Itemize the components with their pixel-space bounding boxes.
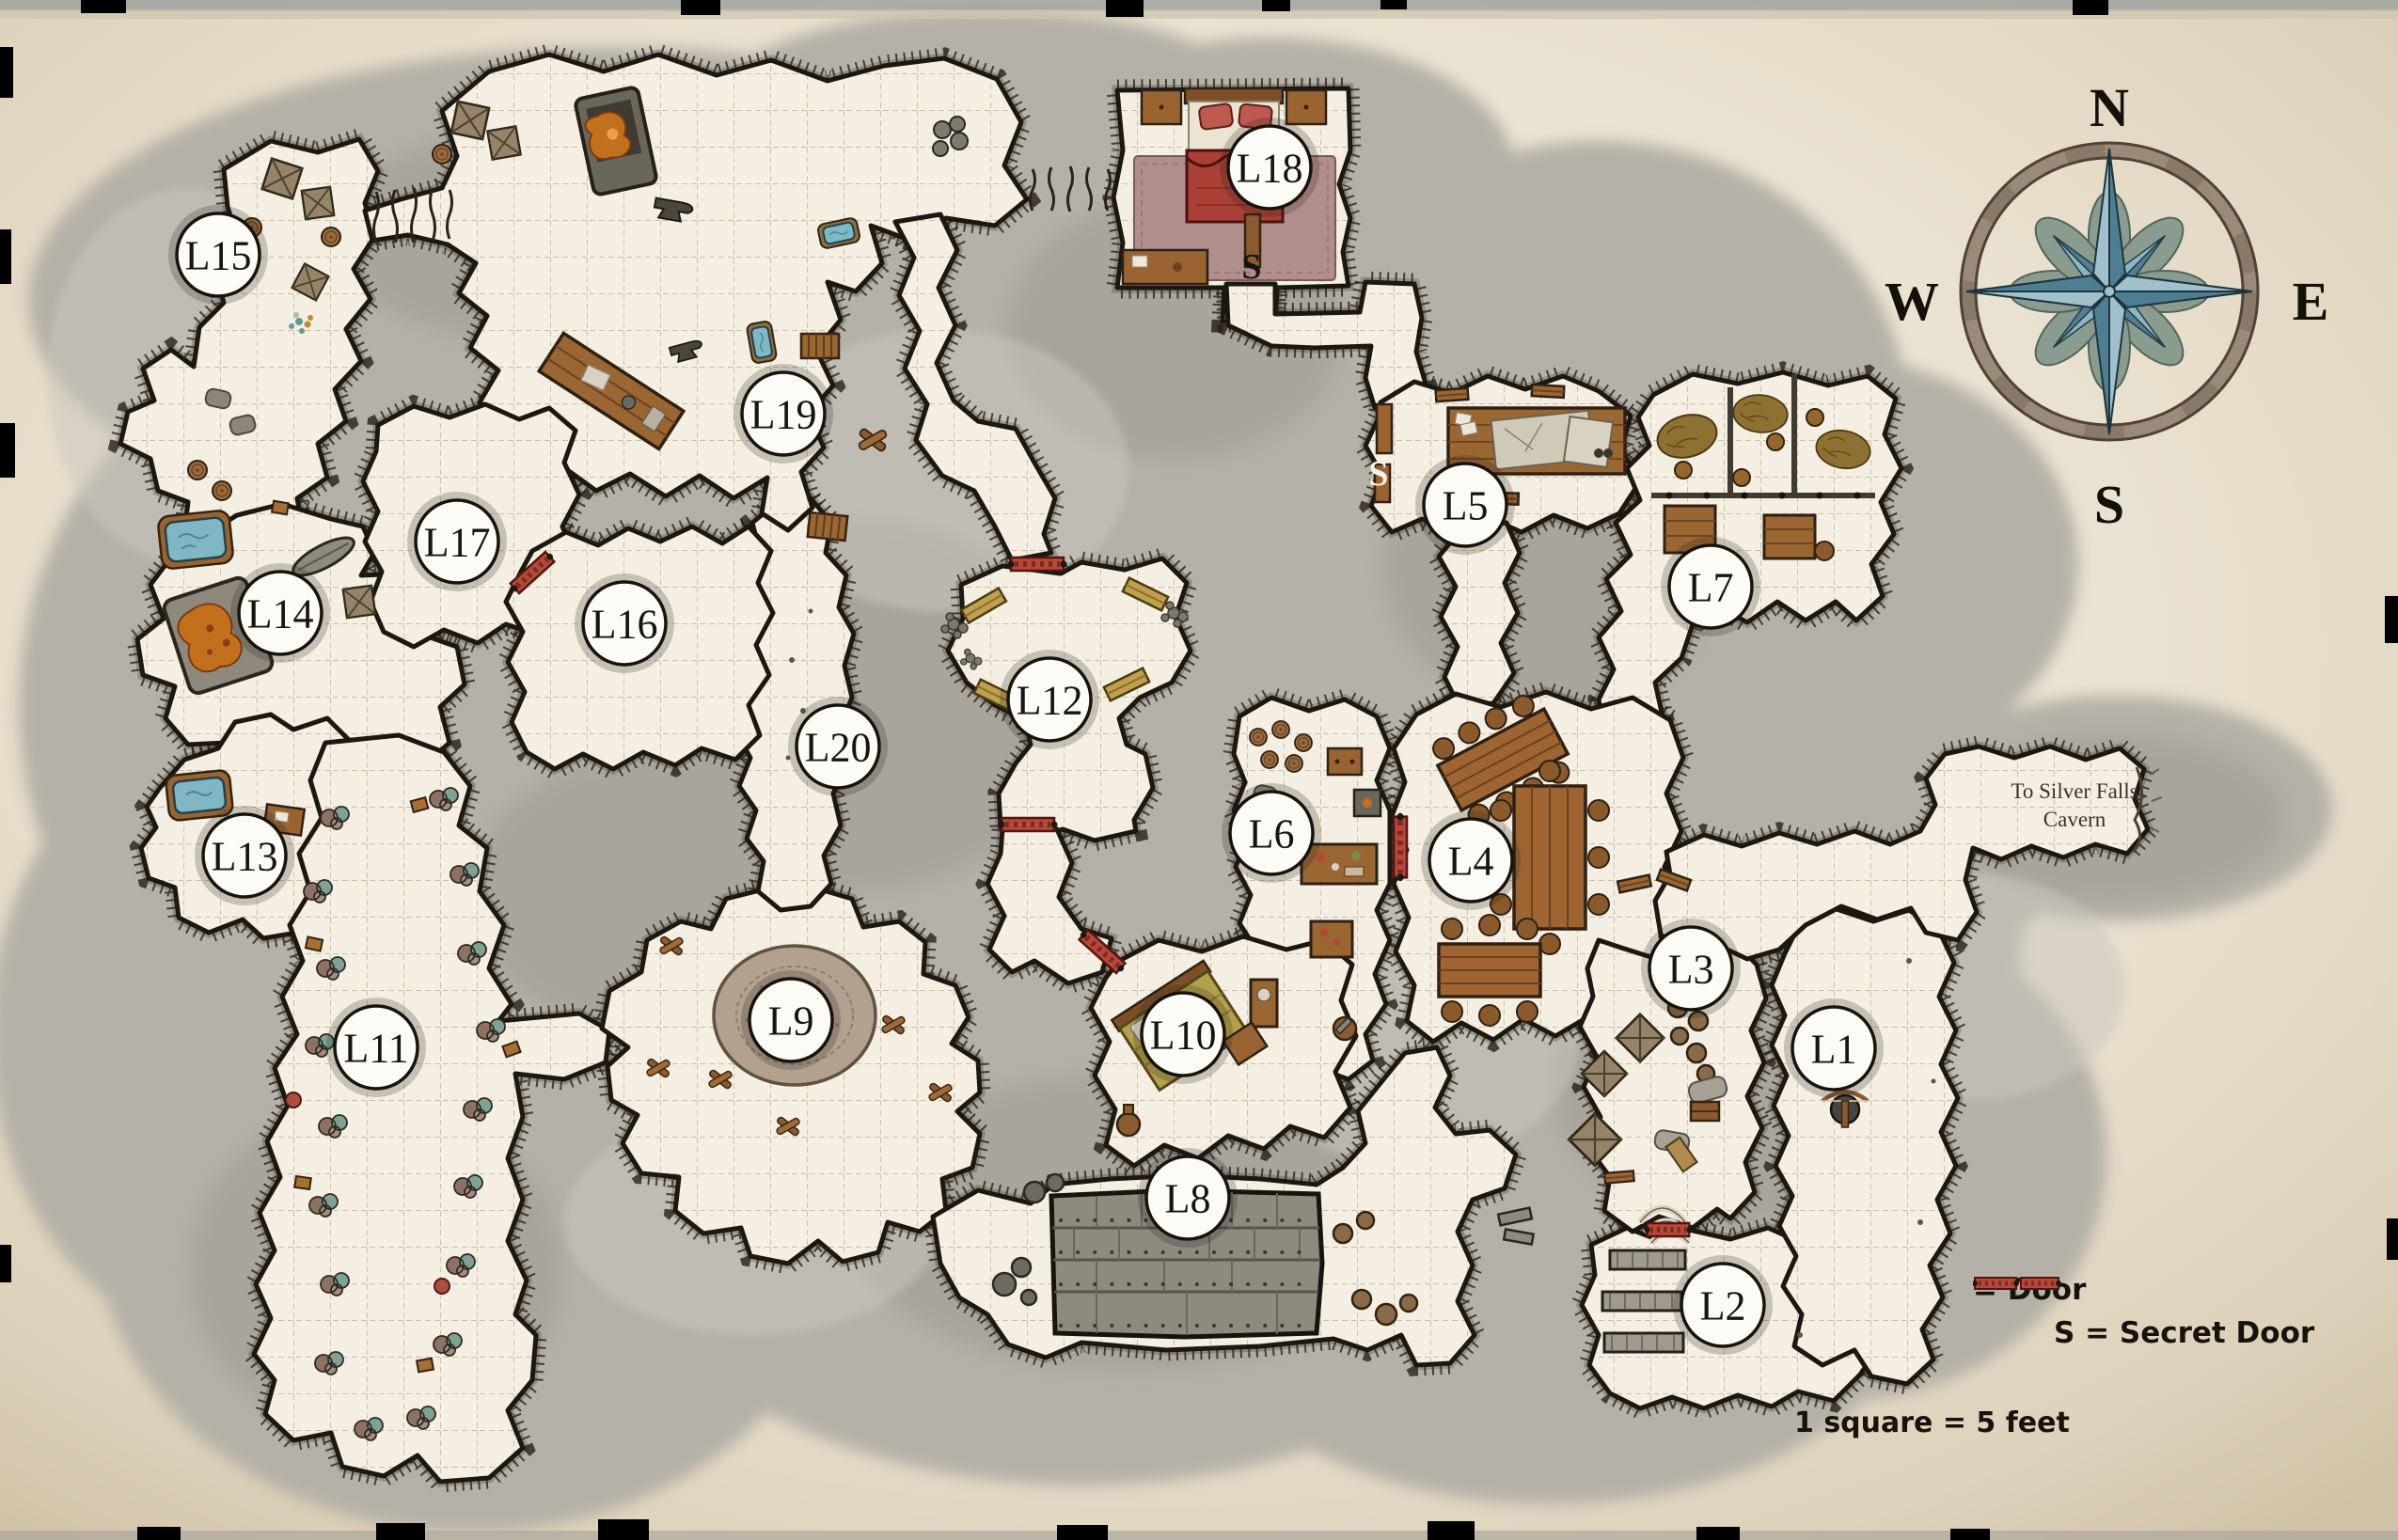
location-marker-L5[interactable]: L5 — [1419, 459, 1511, 551]
water-pool — [157, 510, 233, 570]
marker-label: L14 — [247, 590, 314, 636]
location-marker-L16[interactable]: L16 — [578, 577, 670, 669]
room-L1 — [1772, 908, 1958, 1384]
compass-west-label: W — [1885, 271, 1939, 332]
marker-label: L2 — [1700, 1282, 1746, 1328]
location-marker-L2[interactable]: L2 — [1677, 1259, 1769, 1351]
desk — [1123, 250, 1207, 284]
door-L12-south — [999, 818, 1058, 831]
location-marker-L1[interactable]: L1 — [1788, 1002, 1880, 1094]
marker-label: L16 — [592, 601, 658, 647]
door-L12-north — [1008, 558, 1067, 571]
location-marker-L11[interactable]: L11 — [330, 1001, 422, 1093]
marker-label: L5 — [1443, 482, 1489, 528]
marker-label: L19 — [750, 391, 817, 437]
secret-door-mark: S — [1368, 454, 1388, 494]
room-L2-details — [1602, 1250, 1685, 1352]
compass-north-label: N — [2090, 77, 2129, 138]
marker-label: L10 — [1150, 1012, 1217, 1058]
marker-label: L3 — [1668, 946, 1714, 992]
location-marker-L17[interactable]: L17 — [411, 495, 503, 588]
marker-label: L4 — [1448, 838, 1494, 884]
location-marker-L19[interactable]: L19 — [737, 368, 829, 460]
marker-label: L1 — [1811, 1026, 1857, 1072]
exit-label-line2: Cavern — [2011, 806, 2138, 834]
location-marker-L3[interactable]: L3 — [1645, 922, 1737, 1014]
exit-label-line1: To Silver Falls — [2011, 778, 2138, 806]
marker-label: L13 — [212, 833, 278, 879]
location-marker-L13[interactable]: L13 — [198, 809, 291, 902]
marker-label: L8 — [1165, 1175, 1211, 1221]
marker-label: L9 — [768, 998, 814, 1044]
small-table — [1311, 921, 1352, 957]
location-marker-L10[interactable]: L10 — [1137, 988, 1229, 1080]
location-marker-L15[interactable]: L15 — [172, 209, 264, 301]
counter — [1251, 980, 1277, 1027]
location-marker-L18[interactable]: L18 — [1223, 121, 1316, 213]
map-legend: = Door S = Secret Door — [1973, 1271, 2314, 1352]
location-marker-L9[interactable]: L9 — [745, 974, 837, 1066]
marker-label: L18 — [1237, 145, 1303, 191]
secret-door-mark: S — [1241, 247, 1261, 287]
location-marker-L8[interactable]: L8 — [1142, 1152, 1234, 1244]
door-L6-L4 — [1394, 813, 1407, 881]
marker-label: L17 — [424, 519, 491, 565]
compass-south-label: S — [2094, 474, 2124, 535]
cave-map-screenshot: SS L1L2L3L4L5L6L7L8L9L10L11L12L13L14L15L… — [0, 0, 2398, 1540]
marker-label: L6 — [1249, 810, 1295, 856]
marker-label: L12 — [1017, 677, 1083, 723]
marker-label: L20 — [805, 724, 872, 770]
marker-label: L15 — [185, 232, 252, 278]
door-L2 — [1645, 1223, 1692, 1236]
location-marker-L7[interactable]: L7 — [1664, 541, 1757, 633]
location-marker-L14[interactable]: L14 — [234, 567, 326, 659]
secret-door-legend-label: S = Secret Door — [2054, 1316, 2314, 1350]
marker-label: L11 — [343, 1025, 408, 1071]
compass-east-label: E — [2293, 271, 2329, 332]
long-table — [1439, 915, 1540, 1026]
chopping-block — [1333, 1017, 1356, 1040]
location-marker-L20[interactable]: L20 — [792, 700, 884, 793]
location-marker-L6[interactable]: L6 — [1225, 787, 1317, 879]
door-legend-icon — [1973, 1271, 2063, 1296]
scale-note: 1 square = 5 feet — [1794, 1406, 2070, 1439]
exit-label-silver-falls: To Silver Falls Cavern — [2011, 778, 2138, 834]
location-marker-L4[interactable]: L4 — [1425, 814, 1517, 906]
marker-label: L7 — [1688, 564, 1734, 610]
location-marker-L12[interactable]: L12 — [1003, 653, 1096, 746]
